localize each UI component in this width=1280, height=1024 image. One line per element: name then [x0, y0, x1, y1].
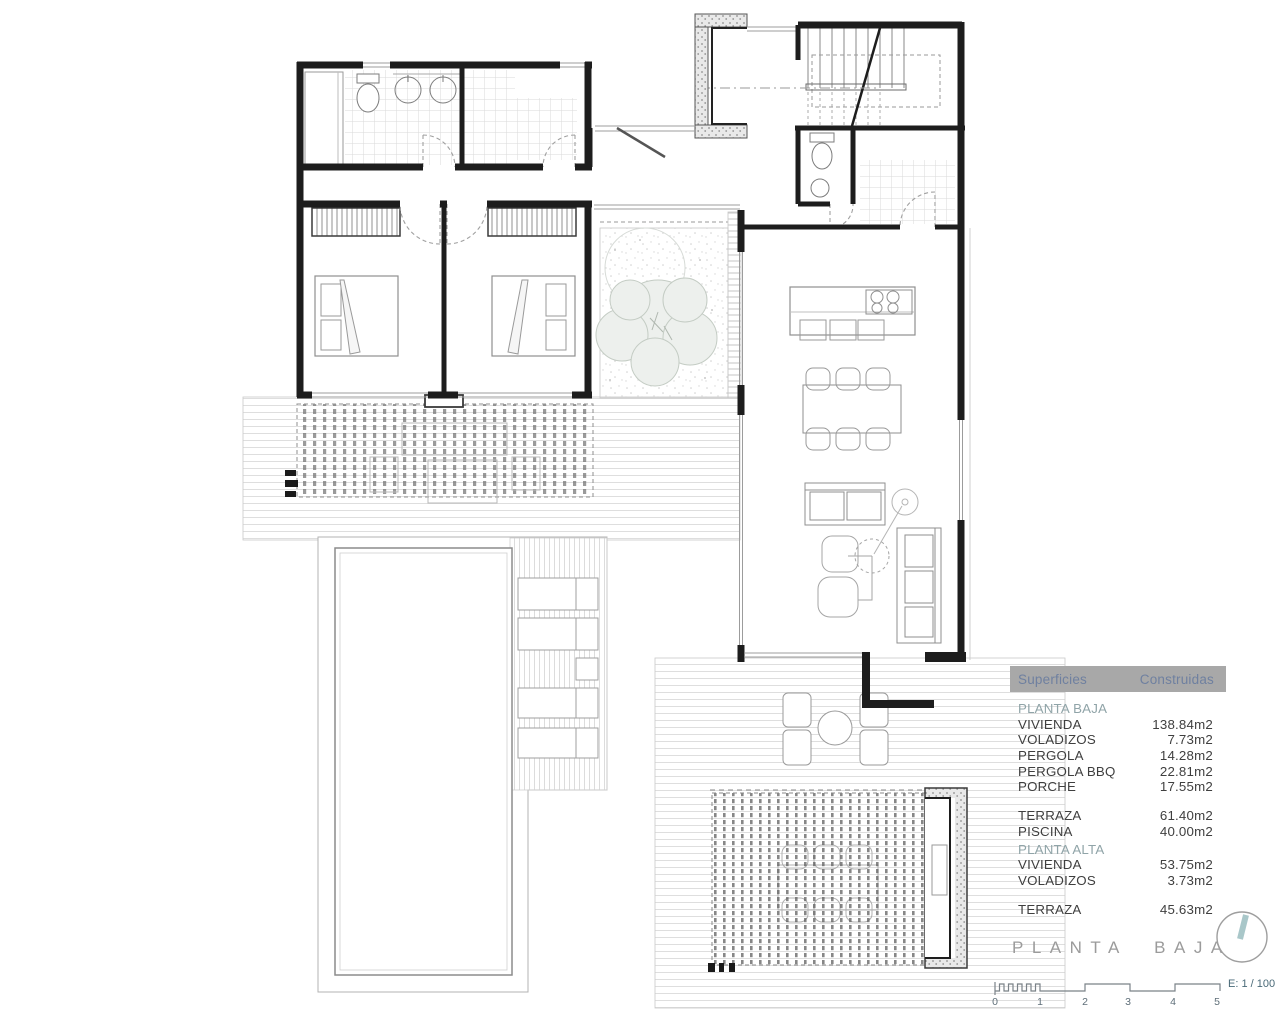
pergola-terrace: [285, 404, 593, 503]
surfaces-table-header: Superficies Construidas: [1010, 666, 1226, 692]
header-col-superficies: Superficies: [1018, 672, 1087, 687]
shower-room: [860, 160, 955, 224]
wc-room: [810, 133, 834, 197]
bedroom-2: [425, 208, 576, 407]
bedroom-1: [312, 208, 400, 356]
section-planta-baja: PLANTA BAJA: [1010, 701, 1226, 717]
kitchen-island: [790, 287, 915, 340]
pool-area: [318, 537, 607, 992]
courtyard: [596, 212, 741, 398]
scale-tick: 4: [1170, 996, 1176, 1008]
table-row: PISCINA40.00m2: [1010, 824, 1226, 840]
scale-tick: 1: [1037, 996, 1043, 1008]
table-row: PERGOLA14.28m2: [1010, 748, 1226, 764]
surfaces-table-body: PLANTA BAJA VIVIENDA138.84m2 VOLADIZOS7.…: [1010, 701, 1226, 917]
bed-2: [492, 276, 575, 356]
closet-1: [312, 208, 400, 236]
scale-tick: 0: [992, 996, 998, 1008]
bathroom-block: [305, 70, 577, 165]
outdoor-table: [818, 711, 852, 745]
scale-tick: 3: [1125, 996, 1131, 1008]
armchairs: [818, 536, 889, 617]
sofa-2seat: [805, 483, 885, 525]
surfaces-table: Superficies Construidas PLANTA BAJA VIVI…: [1010, 666, 1226, 917]
floor-plan-page: { "colors": { "wall": "#1d1d1d", "furnit…: [0, 0, 1280, 1024]
scale-tick: 2: [1082, 996, 1088, 1008]
sun-lounger-deck: [510, 538, 607, 790]
table-row: VIVIENDA138.84m2: [1010, 717, 1226, 733]
section-planta-alta: PLANTA ALTA: [1010, 842, 1226, 858]
table-row: VOLADIZOS3.73m2: [1010, 873, 1226, 889]
north-arrow-icon: [1214, 908, 1272, 966]
bbq-structure: [925, 788, 967, 968]
toilet-icon: [357, 74, 379, 112]
sink-icon: [811, 179, 829, 197]
sofa-3seat: [897, 528, 941, 643]
scale-ratio-label: E: 1 / 100: [1228, 978, 1275, 990]
header-col-construidas: Construidas: [1140, 672, 1214, 687]
toilet-icon: [812, 143, 832, 169]
page-title: PLANTA BAJA: [1012, 938, 1222, 958]
living-room: [805, 483, 941, 643]
open-door-leaf: [617, 128, 665, 157]
swimming-pool: [335, 548, 512, 975]
table-row: TERRAZA61.40m2: [1010, 808, 1226, 824]
table-row: PERGOLA BBQ22.81m2: [1010, 764, 1226, 780]
table-row: TERRAZA45.63m2: [1010, 902, 1226, 918]
bbq-steps: [708, 963, 735, 972]
scale-bar: 0 1 2 3 4 5 E: 1 / 100: [985, 974, 1280, 1018]
bed-1: [315, 276, 398, 356]
scale-tick: 5: [1214, 996, 1220, 1008]
scale-bar-graphic: [985, 974, 1230, 1000]
staircase: [700, 28, 940, 126]
table-row: VIVIENDA53.75m2: [1010, 857, 1226, 873]
table-row: VOLADIZOS7.73m2: [1010, 732, 1226, 748]
dining-table: [803, 368, 901, 450]
entry-porch: [695, 14, 747, 138]
bbq-pergola: [708, 788, 967, 972]
table-row: PORCHE17.55m2: [1010, 779, 1226, 795]
closet-2: [488, 208, 576, 236]
